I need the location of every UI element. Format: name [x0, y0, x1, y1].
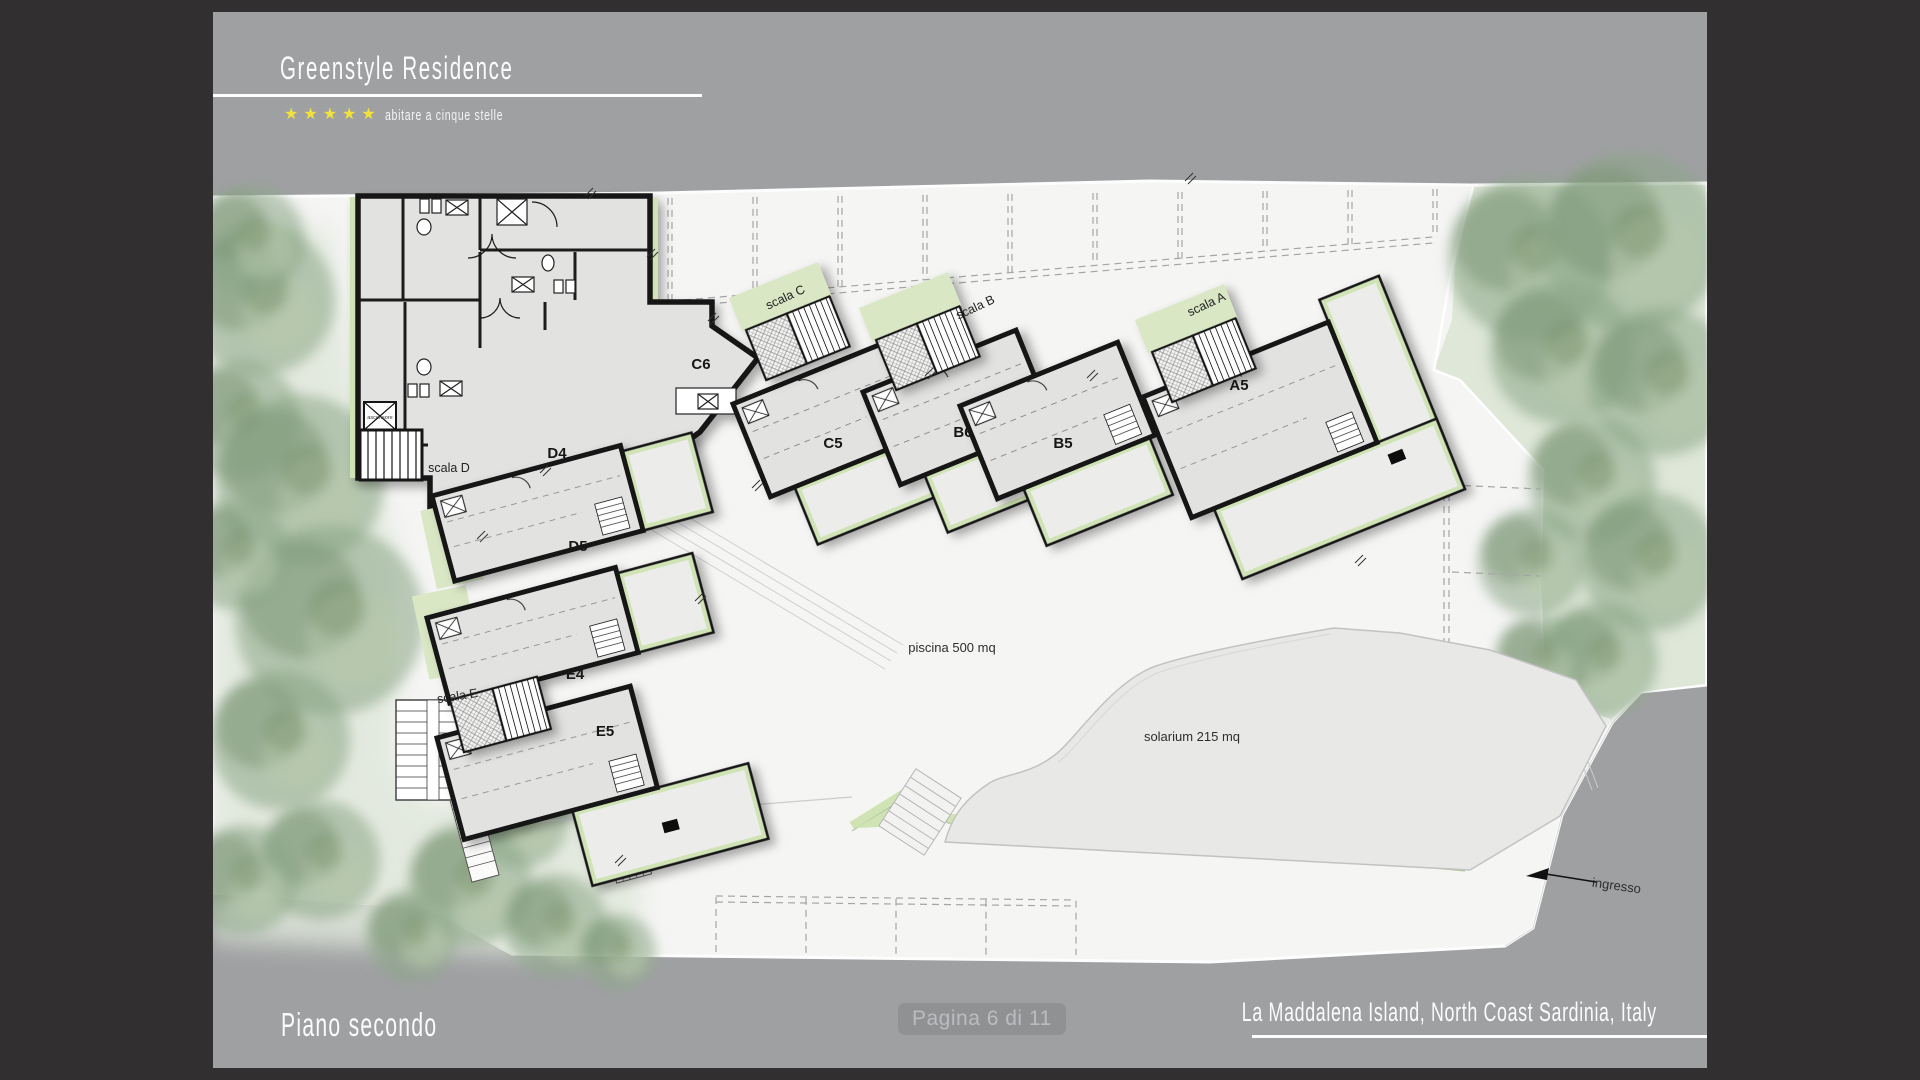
tree-icon	[213, 670, 350, 810]
location-underline	[1252, 1035, 1707, 1038]
plan-label-c5: C5	[823, 435, 842, 452]
plan-label-piscina-500-mq: piscina 500 mq	[908, 640, 995, 655]
rating-row: ★★★★★ abitare a cinque stelle	[284, 105, 554, 125]
brochure-slide: C6D4C5B6B5A5D5E4E5scala Ascala Bscala Cs…	[213, 12, 1707, 1068]
star-icon: ★	[284, 106, 303, 123]
site-plan-drawing: C6D4C5B6B5A5D5E4E5scala Ascala Bscala Cs…	[213, 12, 1707, 1068]
plan-label-c6: C6	[691, 356, 710, 373]
star-icon: ★	[342, 106, 361, 123]
plan-label-e4: E4	[566, 666, 585, 683]
tree-icon	[366, 890, 458, 982]
title-underline	[213, 94, 702, 97]
page-title: Greenstyle Residence	[280, 50, 513, 87]
plan-label-ascensore: ascensore	[367, 415, 392, 421]
plan-label-b6: B6	[953, 424, 972, 441]
plan-label-solarium-215-mq: solarium 215 mq	[1144, 729, 1240, 744]
star-rating: ★★★★★	[284, 105, 381, 125]
plan-label-b5: B5	[1053, 435, 1072, 452]
plan-label-scala-d: scala D	[428, 461, 470, 475]
tree-icon	[580, 914, 656, 990]
plan-label-d4: D4	[547, 445, 567, 462]
star-icon: ★	[361, 106, 380, 123]
tree-icon	[1478, 508, 1586, 616]
page-background: C6D4C5B6B5A5D5E4E5scala Ascala Bscala Cs…	[0, 0, 1920, 1080]
plan-label-d5: D5	[568, 538, 587, 555]
plan-label-e5: E5	[596, 723, 614, 740]
plan-label-ingresso: ingresso	[1591, 875, 1642, 897]
location-label: La Maddalena Island, North Coast Sardini…	[1242, 997, 1657, 1028]
tagline: abitare a cinque stelle	[385, 107, 503, 124]
plan-label-a5: A5	[1229, 377, 1248, 394]
star-icon: ★	[323, 106, 342, 123]
floor-label: Piano secondo	[281, 1006, 437, 1044]
location-block: La Maddalena Island, North Coast Sardini…	[1028, 997, 1707, 1038]
star-icon: ★	[303, 106, 322, 123]
